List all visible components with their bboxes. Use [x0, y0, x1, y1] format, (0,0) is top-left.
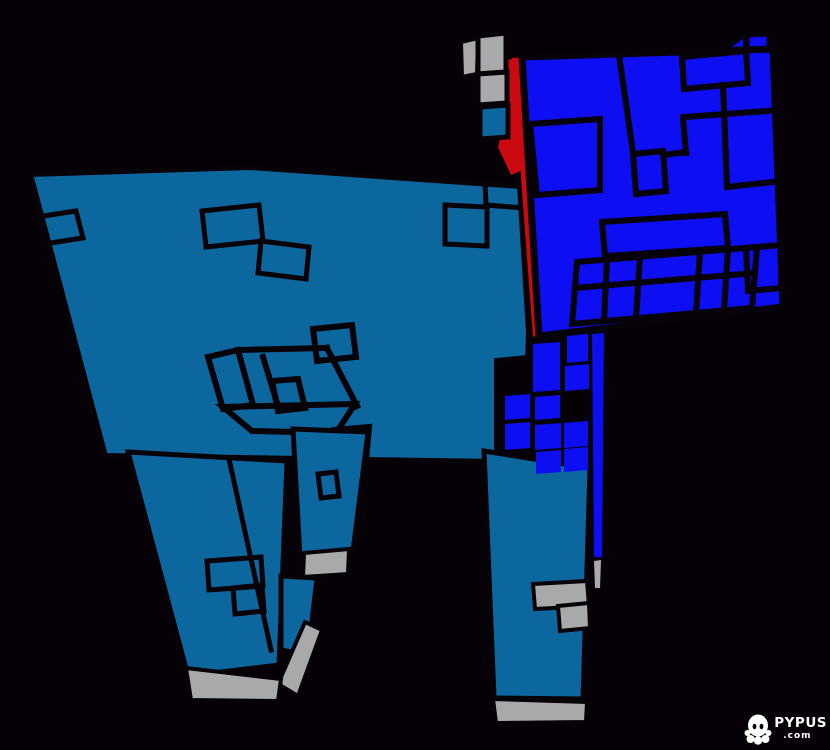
chest-square — [505, 394, 530, 420]
muzzle-grid-v3 — [696, 251, 700, 313]
body-cluster-line-top — [238, 348, 327, 350]
chest-square — [536, 450, 561, 474]
coloring-page-canvas: PYPUS .com — [0, 0, 830, 750]
head-line-v2 — [723, 85, 727, 187]
octopus-icon — [744, 713, 772, 745]
head-line-h1 — [663, 152, 686, 155]
right-hoof — [493, 699, 587, 723]
pypus-watermark: PYPUS .com — [744, 713, 827, 745]
chest-square — [564, 447, 588, 472]
front-left-hoof — [186, 668, 281, 701]
chest-square — [505, 422, 530, 450]
neck-stripe — [592, 333, 604, 557]
muzzle-grid-v4 — [724, 249, 728, 310]
cow-illustration — [0, 0, 830, 750]
chest-square — [535, 423, 561, 450]
right-leg-sliver — [594, 560, 601, 588]
logo-site-tld: .com — [783, 732, 827, 741]
ear-sliver — [461, 38, 478, 77]
cow-body — [30, 167, 529, 462]
head-line-v1 — [683, 118, 686, 153]
ear-box-mid — [478, 72, 507, 105]
ear-box-top — [478, 33, 506, 74]
chest-square — [533, 342, 560, 392]
chest-square — [564, 421, 588, 448]
chest-square — [535, 395, 560, 420]
right-leg — [484, 451, 590, 699]
chest-square — [565, 364, 589, 391]
logo-site-name: PYPUS — [774, 717, 827, 731]
right-leg-patch-2 — [558, 603, 590, 631]
muzzle-grid-v2 — [636, 256, 640, 318]
ear-box-blue — [480, 105, 508, 139]
muzzle-grid-v1 — [604, 259, 607, 321]
hind-leg-knee-gray — [303, 549, 349, 577]
